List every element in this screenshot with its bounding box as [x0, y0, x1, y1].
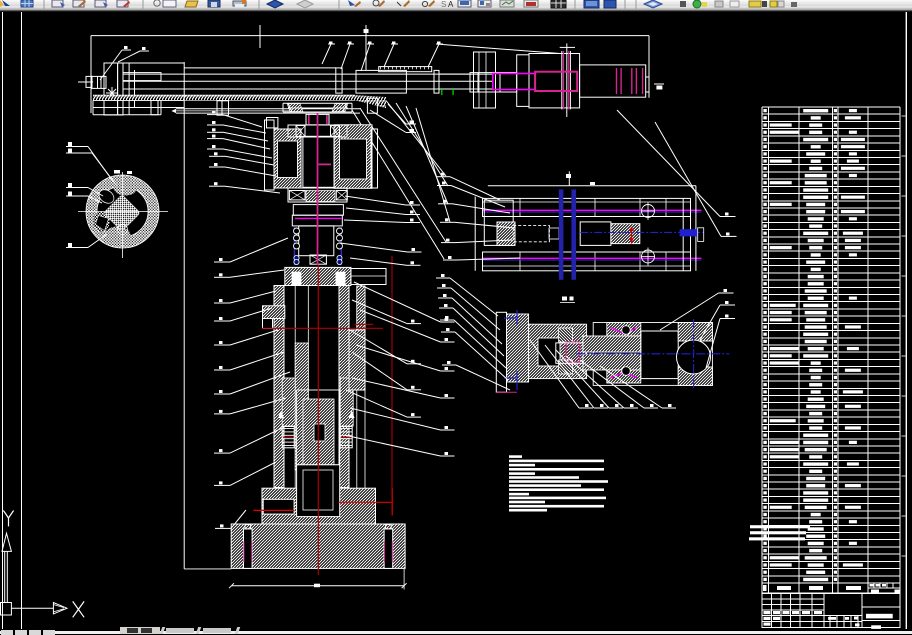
- svg-text:S: S: [441, 0, 446, 9]
- svg-text:A: A: [448, 0, 454, 9]
